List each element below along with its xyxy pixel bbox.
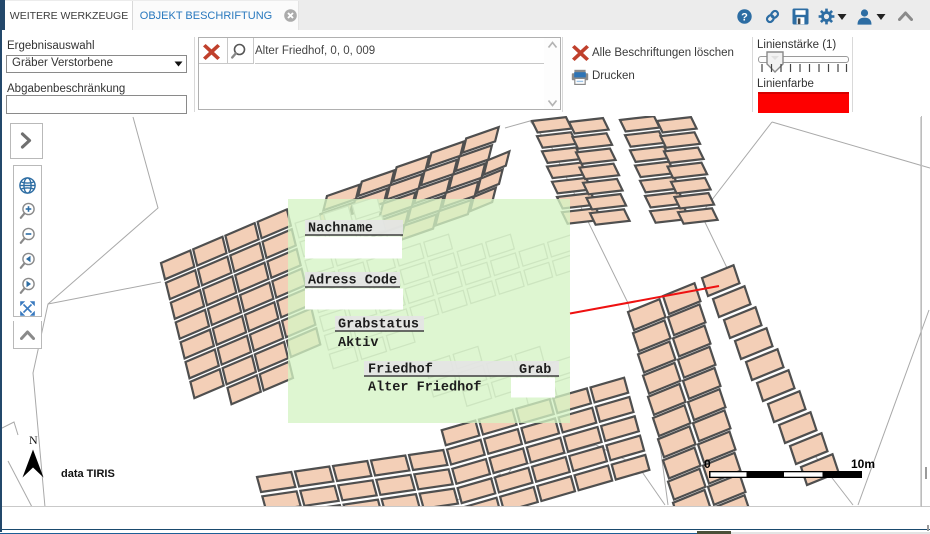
svg-text:?: ? (741, 11, 748, 23)
svg-text:N: N (29, 433, 38, 447)
svg-text:10m: 10m (851, 457, 875, 471)
svg-text:Nachname: Nachname (308, 222, 373, 237)
svg-text:data TIRIS: data TIRIS (61, 468, 115, 480)
svg-text:Alter Friedhof: Alter Friedhof (368, 381, 481, 396)
svg-text:Aktiv: Aktiv (338, 336, 379, 351)
svg-text:Grabstatus: Grabstatus (338, 318, 419, 333)
svg-text:0: 0 (704, 457, 711, 471)
svg-text:Grab: Grab (519, 363, 551, 378)
svg-text:Friedhof: Friedhof (368, 363, 433, 378)
svg-text:Adress Code: Adress Code (308, 274, 397, 289)
